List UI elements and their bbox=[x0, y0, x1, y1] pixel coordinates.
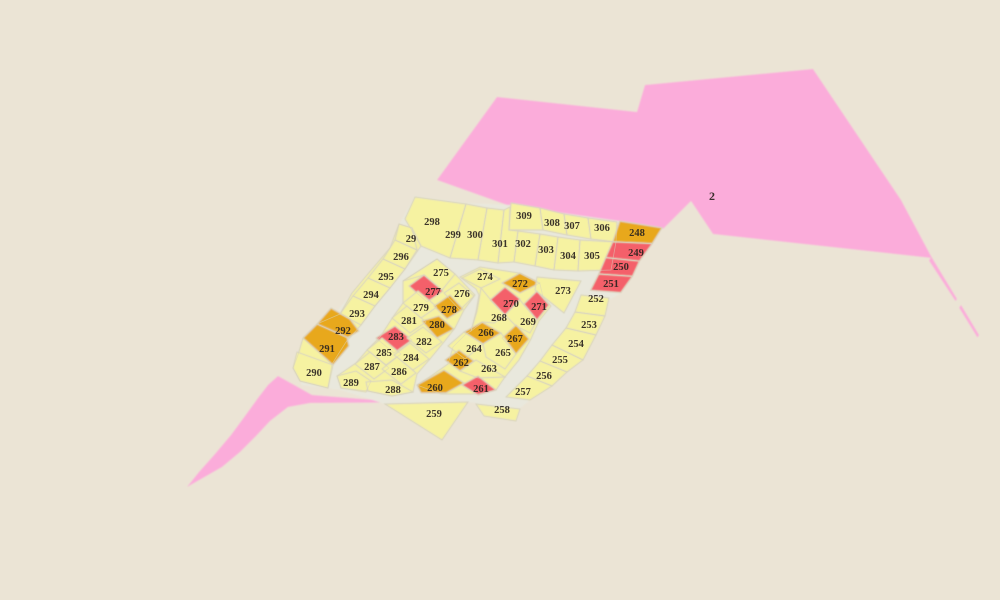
svg-text:298: 298 bbox=[424, 217, 440, 228]
svg-text:309: 309 bbox=[516, 211, 532, 222]
svg-text:301: 301 bbox=[492, 239, 508, 250]
svg-text:259: 259 bbox=[426, 409, 442, 420]
svg-text:263: 263 bbox=[481, 364, 497, 375]
svg-text:284: 284 bbox=[403, 353, 420, 364]
svg-text:299: 299 bbox=[445, 230, 461, 241]
svg-text:260: 260 bbox=[427, 383, 443, 394]
svg-text:274: 274 bbox=[477, 272, 494, 283]
svg-text:293: 293 bbox=[349, 309, 365, 320]
svg-text:279: 279 bbox=[413, 303, 429, 314]
svg-text:277: 277 bbox=[425, 287, 441, 298]
svg-text:248: 248 bbox=[629, 228, 645, 239]
svg-text:272: 272 bbox=[512, 279, 528, 290]
svg-text:270: 270 bbox=[503, 299, 519, 310]
svg-text:254: 254 bbox=[568, 339, 585, 350]
svg-text:305: 305 bbox=[584, 251, 600, 262]
svg-text:267: 267 bbox=[507, 334, 523, 345]
svg-text:300: 300 bbox=[467, 230, 483, 241]
svg-text:252: 252 bbox=[588, 294, 604, 305]
svg-text:304: 304 bbox=[560, 251, 577, 262]
svg-text:288: 288 bbox=[385, 385, 401, 396]
svg-text:257: 257 bbox=[515, 387, 531, 398]
svg-text:253: 253 bbox=[581, 320, 597, 331]
svg-text:290: 290 bbox=[306, 368, 322, 379]
svg-text:307: 307 bbox=[564, 221, 580, 232]
svg-text:281: 281 bbox=[401, 316, 417, 327]
svg-text:269: 269 bbox=[520, 317, 536, 328]
svg-text:2: 2 bbox=[709, 189, 715, 203]
svg-text:273: 273 bbox=[555, 286, 571, 297]
svg-text:265: 265 bbox=[495, 348, 511, 359]
svg-text:250: 250 bbox=[613, 262, 629, 273]
svg-text:303: 303 bbox=[538, 245, 554, 256]
svg-text:261: 261 bbox=[473, 384, 489, 395]
svg-text:295: 295 bbox=[378, 272, 394, 283]
svg-text:255: 255 bbox=[552, 355, 568, 366]
svg-text:262: 262 bbox=[453, 358, 469, 369]
svg-text:268: 268 bbox=[491, 313, 507, 324]
svg-text:278: 278 bbox=[441, 305, 457, 316]
svg-text:271: 271 bbox=[531, 302, 547, 313]
svg-text:251: 251 bbox=[603, 279, 619, 290]
svg-text:285: 285 bbox=[376, 348, 392, 359]
svg-text:291: 291 bbox=[319, 344, 335, 355]
svg-text:302: 302 bbox=[515, 239, 531, 250]
svg-text:286: 286 bbox=[391, 367, 407, 378]
svg-text:294: 294 bbox=[363, 290, 380, 301]
svg-text:264: 264 bbox=[466, 344, 483, 355]
svg-text:258: 258 bbox=[494, 405, 510, 416]
svg-text:282: 282 bbox=[416, 337, 432, 348]
svg-text:306: 306 bbox=[594, 223, 610, 234]
svg-text:275: 275 bbox=[433, 268, 449, 279]
svg-text:29: 29 bbox=[406, 234, 417, 245]
svg-text:256: 256 bbox=[536, 371, 552, 382]
svg-text:283: 283 bbox=[388, 332, 404, 343]
svg-text:287: 287 bbox=[364, 362, 380, 373]
svg-text:276: 276 bbox=[454, 289, 470, 300]
svg-text:292: 292 bbox=[335, 326, 351, 337]
svg-text:296: 296 bbox=[393, 252, 409, 263]
svg-text:266: 266 bbox=[478, 328, 494, 339]
svg-text:289: 289 bbox=[343, 378, 359, 389]
svg-text:249: 249 bbox=[628, 248, 644, 259]
svg-text:308: 308 bbox=[544, 218, 560, 229]
svg-text:280: 280 bbox=[429, 320, 445, 331]
